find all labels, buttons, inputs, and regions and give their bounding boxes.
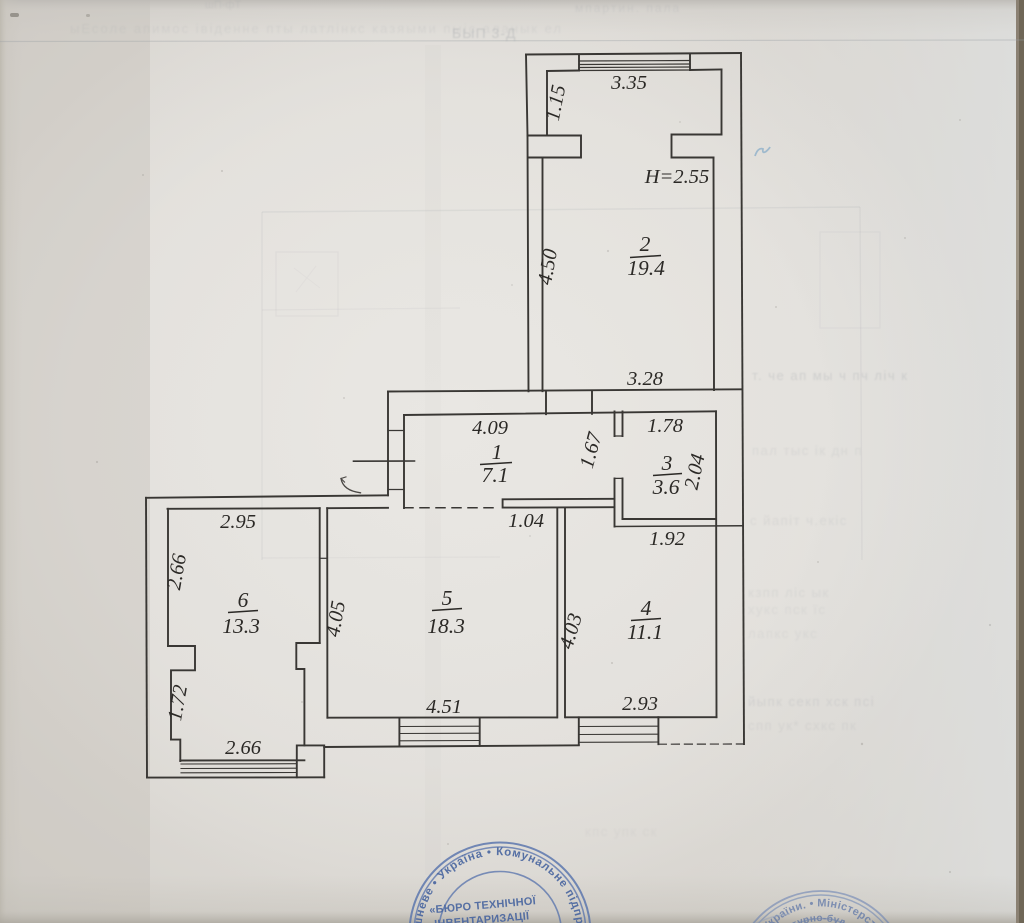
svg-text:хукс пск ïс: хукс пск ïс <box>748 602 826 617</box>
svg-text:3.28: 3.28 <box>626 368 664 390</box>
svg-text:т. че ап мы ч пч ліч к: т. че ап мы ч пч ліч к <box>752 368 908 383</box>
svg-text:спп ук* схкс пк: спп ук* схкс пк <box>748 718 857 733</box>
svg-text:5: 5 <box>442 586 453 610</box>
svg-text:3.6: 3.6 <box>652 475 680 499</box>
svg-text:3: 3 <box>661 451 673 475</box>
svg-text:пал тыс ік дн п: пал тыс ік дн п <box>752 443 863 458</box>
svg-text:кзпп ліс ык: кзпп ліс ык <box>748 585 830 600</box>
svg-text:4.51: 4.51 <box>426 696 462 718</box>
svg-text:3.35: 3.35 <box>610 72 647 94</box>
svg-text:лапкс укс: лапкс укс <box>748 626 818 641</box>
svg-text:H=2.55: H=2.55 <box>644 166 710 188</box>
svg-text:4.09: 4.09 <box>472 417 508 439</box>
svg-text:с йапіт ч.екіс: с йапіт ч.екіс <box>750 513 848 528</box>
svg-text:7.1: 7.1 <box>482 463 509 487</box>
svg-text:кпс упк ск: кпс упк ск <box>585 824 658 839</box>
svg-text:йыпк секп хск псі: йыпк секп хск псі <box>748 694 875 709</box>
svg-text:шП-фТ: шП-фТ <box>205 0 241 11</box>
svg-text:6: 6 <box>238 588 249 612</box>
svg-text:18.3: 18.3 <box>427 614 465 638</box>
svg-text:4: 4 <box>641 596 652 620</box>
svg-text:2.95: 2.95 <box>220 511 256 533</box>
svg-text:2.66: 2.66 <box>225 737 262 759</box>
svg-text:19.4: 19.4 <box>627 256 665 280</box>
svg-text:2.93: 2.93 <box>622 693 658 715</box>
svg-text:1.92: 1.92 <box>649 528 685 550</box>
svg-text:1.78: 1.78 <box>647 415 684 437</box>
svg-text:БЫП 3-Д: БЫП 3-Д <box>452 25 516 41</box>
svg-text:1: 1 <box>492 440 503 464</box>
svg-text:11.1: 11.1 <box>627 620 663 644</box>
svg-text:1.04: 1.04 <box>508 510 544 532</box>
svg-text:13.3: 13.3 <box>222 614 260 638</box>
svg-text:мпартин. пала: мпартин. пала <box>575 1 681 15</box>
svg-text:2: 2 <box>640 232 651 256</box>
